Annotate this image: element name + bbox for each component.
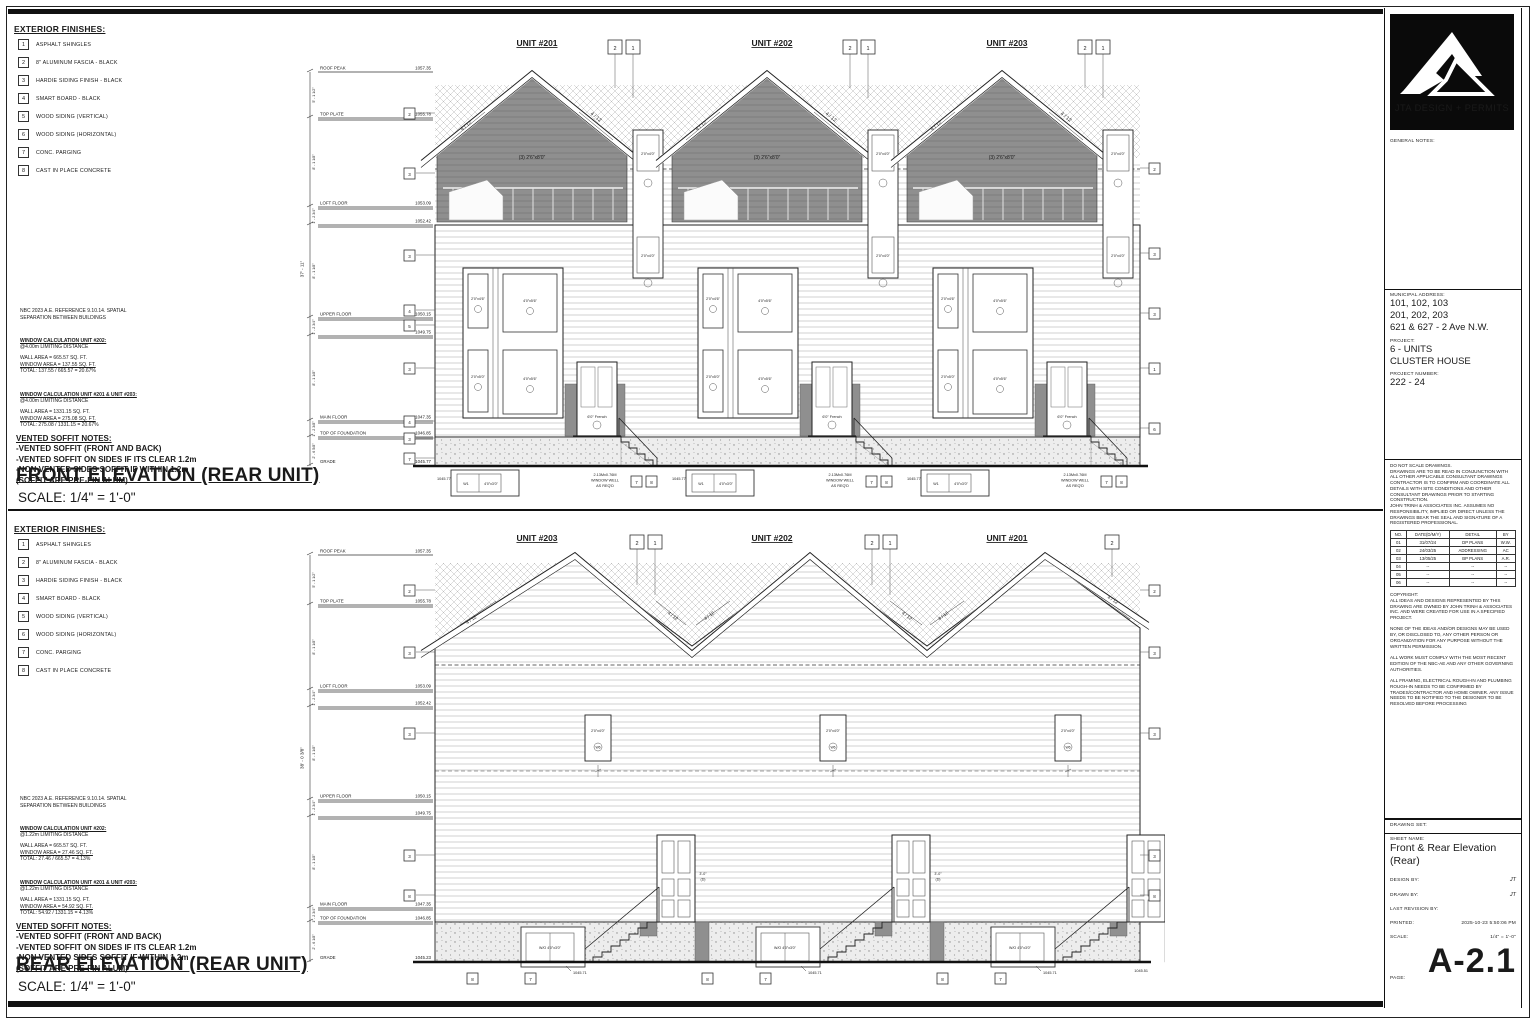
- drawing-set-label: DRAWING SET:: [1390, 823, 1516, 828]
- svg-text:1052.42: 1052.42: [415, 701, 431, 706]
- legend-item: 5WOOD SIDING (VERTICAL): [18, 611, 300, 622]
- svg-text:1049.75: 1049.75: [415, 330, 431, 335]
- svg-text:8' - 1 1/8": 8' - 1 1/8": [312, 263, 316, 279]
- revision-row: 05------: [1391, 571, 1516, 579]
- svg-text:8' - 1 1/8": 8' - 1 1/8": [312, 370, 316, 386]
- unit-label: UNIT #202: [751, 38, 792, 48]
- svg-text:1053.09: 1053.09: [415, 684, 431, 689]
- svg-text:5' - 1 1/2": 5' - 1 1/2": [312, 572, 316, 588]
- legend-item: 5WOOD SIDING (VERTICAL): [18, 111, 300, 122]
- sheet-name: (Rear): [1390, 855, 1516, 868]
- unit-label: UNIT #202: [751, 533, 792, 543]
- svg-text:ROOF PEAK: ROOF PEAK: [320, 549, 346, 554]
- rear-elevation-title: REAR ELEVATION (REAR UNIT): [16, 954, 308, 976]
- dimension-string: 37' - 11" 5' - 1 1/2" 8' - 1 1/8" 1' - 2…: [300, 69, 316, 466]
- dimension-string: 38' - 0 3/8" 5' - 1 1/2" 8' - 1 1/8" 1' …: [300, 552, 316, 962]
- svg-text:1' - 2 3/4": 1' - 2 3/4": [312, 690, 316, 706]
- nbc-note: NBC 2023 A.E. REFERENCE 9.10.14. SPATIAL…: [20, 308, 127, 322]
- sheet-info-section: SHEET NAME: Front & Rear Elevation (Rear…: [1385, 834, 1521, 1006]
- address-line: 101, 102, 103: [1390, 298, 1516, 310]
- drawn-by-label: DRAWN BY:: [1390, 893, 1419, 898]
- finish-key-column-left: 2 3 3 3 8: [404, 585, 435, 901]
- window-calc-202: WINDOW CALCULATION UNIT #202: @4.00m LIM…: [20, 338, 106, 375]
- svg-text:1045.77: 1045.77: [415, 459, 431, 464]
- svg-text:1055.78: 1055.78: [415, 112, 431, 117]
- project-number: 222 - 24: [1390, 377, 1516, 389]
- svg-text:2' - 6 1/8": 2' - 6 1/8": [312, 934, 316, 950]
- svg-text:2: 2: [1110, 541, 1113, 547]
- project-info-section: MUNICIPAL ADDRESS: 101, 102, 103 201, 20…: [1385, 290, 1521, 460]
- unit-label: UNIT #201: [516, 38, 557, 48]
- general-notes-label: GENERAL NOTES:: [1390, 139, 1516, 144]
- revision-row: 0224/03/25ADDRESSINGAC: [1391, 547, 1516, 555]
- drawn-by-value: JT: [1510, 892, 1516, 898]
- legend-item: 8CAST IN PLACE CONCRETE: [18, 165, 300, 176]
- svg-text:ROOF PEAK: ROOF PEAK: [320, 66, 346, 71]
- svg-text:1047.35: 1047.35: [415, 902, 431, 907]
- svg-text:TOP PLATE: TOP PLATE: [320, 599, 344, 604]
- finish-key-1: 1: [18, 539, 29, 550]
- window-calc-202: WINDOW CALCULATION UNIT #202: @1.22m LIM…: [20, 826, 106, 863]
- revision-table: NO. DATE(D/M/Y) DETAIL BY 0131/07/24DP P…: [1390, 530, 1516, 587]
- svg-text:1' - 2 3/4": 1' - 2 3/4": [312, 208, 316, 224]
- top-frame-bar: [8, 9, 1383, 14]
- finish-key-column-right: 2 3 3 1 6: [1140, 163, 1160, 434]
- legend-item: 8CAST IN PLACE CONCRETE: [18, 665, 300, 676]
- firm-name: JTA DESIGN + PERMITS: [1395, 103, 1509, 113]
- svg-text:1053.09: 1053.09: [415, 201, 431, 206]
- finish-key-3: 3: [18, 575, 29, 586]
- svg-text:1052.42: 1052.42: [415, 219, 431, 224]
- design-by-label: DESIGN BY:: [1390, 878, 1419, 883]
- svg-text:1045.23: 1045.23: [415, 955, 431, 960]
- panel-divider: [8, 509, 1383, 511]
- address-line: 621 & 627 - 2 Ave N.W.: [1390, 322, 1516, 334]
- svg-text:1' - 2 3/4": 1' - 2 3/4": [312, 907, 316, 923]
- finish-key-6: 6: [18, 129, 29, 140]
- window-calc-201-203: WINDOW CALCULATION UNIT #201 & UNIT #203…: [20, 392, 137, 429]
- disclaimer-text: DO NOT SCALE DRAWINGS. DRAWINGS ARE TO B…: [1390, 463, 1516, 526]
- finish-key-4: 4: [18, 93, 29, 104]
- level-markers: [318, 72, 433, 439]
- legend-item: 3HARDIE SIDING FINISH - BLACK: [18, 575, 300, 586]
- legal-section: DO NOT SCALE DRAWINGS. DRAWINGS ARE TO B…: [1385, 460, 1521, 820]
- svg-text:TOP OF FOUNDATION: TOP OF FOUNDATION: [320, 916, 366, 921]
- legend-item: 28" ALUMINUM FASCIA - BLACK: [18, 57, 300, 68]
- svg-text:LOFT FLOOR: LOFT FLOOR: [320, 684, 348, 689]
- finish-key-2: 2: [18, 557, 29, 568]
- legend-item: 7CONC. PARGING: [18, 647, 300, 658]
- svg-text:1050.15: 1050.15: [415, 312, 431, 317]
- finish-key-7: 7: [18, 647, 29, 658]
- project-line: CLUSTER HOUSE: [1390, 356, 1516, 368]
- exterior-finishes-title: EXTERIOR FINISHES:: [14, 24, 300, 34]
- rear-elevation-scale: SCALE: 1/4" = 1'-0": [18, 979, 136, 994]
- finish-key-6: 6: [18, 629, 29, 640]
- svg-text:2: 2: [848, 46, 851, 52]
- svg-text:1046.85: 1046.85: [415, 431, 431, 436]
- svg-text:MAIN FLOOR: MAIN FLOOR: [320, 415, 347, 420]
- rear-notes-panel: EXTERIOR FINISHES: 1ASPHALT SHINGLES 28"…: [14, 524, 300, 1002]
- finish-key-4: 4: [18, 593, 29, 604]
- revision-row: 04------: [1391, 563, 1516, 571]
- unit-labels: UNIT #201 UNIT #202 UNIT #203: [516, 38, 1027, 48]
- svg-text:1: 1: [631, 46, 634, 52]
- svg-text:GRADE: GRADE: [320, 459, 336, 464]
- legend-item: 6WOOD SIDING (HORIZONTAL): [18, 129, 300, 140]
- printed-value: 2025-10-23 5:50:06 PM: [1461, 921, 1516, 926]
- overall-dim: 37' - 11": [300, 260, 305, 277]
- svg-text:1: 1: [866, 46, 869, 52]
- legend-item: 4SMART BOARD - BLACK: [18, 593, 300, 604]
- svg-text:1: 1: [888, 541, 891, 547]
- svg-text:2: 2: [613, 46, 616, 52]
- front-elevation-title: FRONT ELEVATION (REAR UNIT): [16, 465, 319, 487]
- address-line: 201, 202, 203: [1390, 310, 1516, 322]
- finish-key-1: 1: [18, 39, 29, 50]
- svg-text:1050.15: 1050.15: [415, 794, 431, 799]
- title-block: JTA DESIGN + PERMITS GENERAL NOTES: MUNI…: [1384, 8, 1522, 1008]
- svg-text:5' - 1 1/2": 5' - 1 1/2": [312, 87, 316, 103]
- legend-item: 6WOOD SIDING (HORIZONTAL): [18, 629, 300, 640]
- finish-key-3: 3: [18, 75, 29, 86]
- revision-row: 06------: [1391, 579, 1516, 587]
- spot-elevation-right: 1045.51: [1134, 969, 1148, 973]
- finish-key-5: 5: [18, 611, 29, 622]
- finish-key-8: 8: [18, 665, 29, 676]
- scale-value: 1/4" = 1'-0": [1490, 935, 1516, 940]
- page-number: A-2.1: [1428, 942, 1516, 981]
- svg-text:1057.35: 1057.35: [415, 66, 431, 71]
- finish-key-5: 5: [18, 111, 29, 122]
- svg-text:1049.75: 1049.75: [415, 811, 431, 816]
- svg-text:TOP PLATE: TOP PLATE: [320, 112, 344, 117]
- svg-text:1057.35: 1057.35: [415, 549, 431, 554]
- last-revision-label: LAST REVISION BY:: [1390, 907, 1438, 912]
- legend-item: 1ASPHALT SHINGLES: [18, 39, 300, 50]
- exterior-finishes-title: EXTERIOR FINISHES:: [14, 524, 300, 534]
- svg-text:1: 1: [1101, 46, 1104, 52]
- rear-wall-siding: [435, 558, 1140, 922]
- front-elevation-drawing: 4 / 12 4 / 12 (3) 2'6"x8'0" 2'0"x4'0" 2'…: [300, 28, 1165, 506]
- unit-label: UNIT #203: [986, 38, 1027, 48]
- svg-text:1055.78: 1055.78: [415, 599, 431, 604]
- overall-dim: 38' - 0 3/8": [300, 747, 305, 769]
- revision-row: 0313/05/25BP PLANSA.R.: [1391, 555, 1516, 563]
- svg-text:8' - 1 1/8": 8' - 1 1/8": [312, 639, 316, 655]
- unit-labels: UNIT #203 UNIT #202 UNIT #201: [516, 533, 1027, 543]
- svg-text:GRADE: GRADE: [320, 955, 336, 960]
- legend-item: 28" ALUMINUM FASCIA - BLACK: [18, 557, 300, 568]
- svg-text:2: 2: [1083, 46, 1086, 52]
- project-line: 6 - UNITS: [1390, 344, 1516, 356]
- svg-text:8' - 1 1/8": 8' - 1 1/8": [312, 854, 316, 870]
- drawing-sheet: EXTERIOR FINISHES: 1ASPHALT SHINGLES 28"…: [0, 0, 1536, 1024]
- svg-text:MAIN FLOOR: MAIN FLOOR: [320, 902, 347, 907]
- svg-text:LOFT FLOOR: LOFT FLOOR: [320, 201, 348, 206]
- copyright-text: COPYRIGHT: ALL IDEAS AND DESIGNS REPRESE…: [1390, 592, 1516, 707]
- svg-text:8' - 1 1/8": 8' - 1 1/8": [312, 154, 316, 170]
- sheet-name: Front & Rear Elevation: [1390, 842, 1516, 855]
- svg-text:2: 2: [635, 541, 638, 547]
- svg-text:2: 2: [870, 541, 873, 547]
- jta-logo-mark: [1400, 32, 1490, 94]
- unit-label: UNIT #203: [516, 533, 557, 543]
- finish-key-8: 8: [18, 165, 29, 176]
- unit-label: UNIT #201: [986, 533, 1027, 543]
- svg-text:1' - 2 3/8": 1' - 2 3/8": [312, 421, 316, 437]
- finish-key-7: 7: [18, 147, 29, 158]
- svg-text:1047.35: 1047.35: [415, 415, 431, 420]
- legend-item: 3HARDIE SIDING FINISH - BLACK: [18, 75, 300, 86]
- svg-text:UPPER FLOOR: UPPER FLOOR: [320, 312, 351, 317]
- page-label: PAGE:: [1390, 976, 1405, 981]
- rear-elevation-drawing: 2'0"x4'0" W6 3'-0" (D): [300, 525, 1165, 1000]
- svg-text:1' - 2 3/4": 1' - 2 3/4": [312, 800, 316, 816]
- level-labels: ROOF PEAK1057.35 TOP PLATE1055.78 LOFT F…: [320, 66, 432, 465]
- svg-text:1: 1: [653, 541, 656, 547]
- scale-label: SCALE:: [1390, 935, 1408, 940]
- legend-item: 7CONC. PARGING: [18, 147, 300, 158]
- legend-item: 4SMART BOARD - BLACK: [18, 93, 300, 104]
- window-calc-201-203: WINDOW CALCULATION UNIT #201 & UNIT #203…: [20, 880, 137, 917]
- finish-key-2: 2: [18, 57, 29, 68]
- front-elevation-scale: SCALE: 1/4" = 1'-0": [18, 490, 136, 505]
- design-by-value: JT: [1510, 877, 1516, 883]
- legend-item: 1ASPHALT SHINGLES: [18, 539, 300, 550]
- svg-text:2' - 6 5/8": 2' - 6 5/8": [312, 443, 316, 459]
- printed-label: PRINTED:: [1390, 921, 1414, 926]
- level-markers: [318, 555, 433, 924]
- front-notes-panel: EXTERIOR FINISHES: 1ASPHALT SHINGLES 28"…: [14, 24, 300, 508]
- nbc-note: NBC 2023 A.E. REFERENCE 9.10.14. SPATIAL…: [20, 796, 127, 810]
- foundation-wall: [435, 437, 1140, 466]
- svg-text:8' - 1 1/8": 8' - 1 1/8": [312, 745, 316, 761]
- revision-row: 0131/07/24DP PLANSW.W.: [1391, 539, 1516, 547]
- svg-text:1' - 2 3/4": 1' - 2 3/4": [312, 319, 316, 335]
- svg-text:TOP OF FOUNDATION: TOP OF FOUNDATION: [320, 431, 366, 436]
- svg-text:UPPER FLOOR: UPPER FLOOR: [320, 794, 351, 799]
- firm-logo: JTA DESIGN + PERMITS: [1390, 14, 1514, 130]
- svg-text:1046.85: 1046.85: [415, 916, 431, 921]
